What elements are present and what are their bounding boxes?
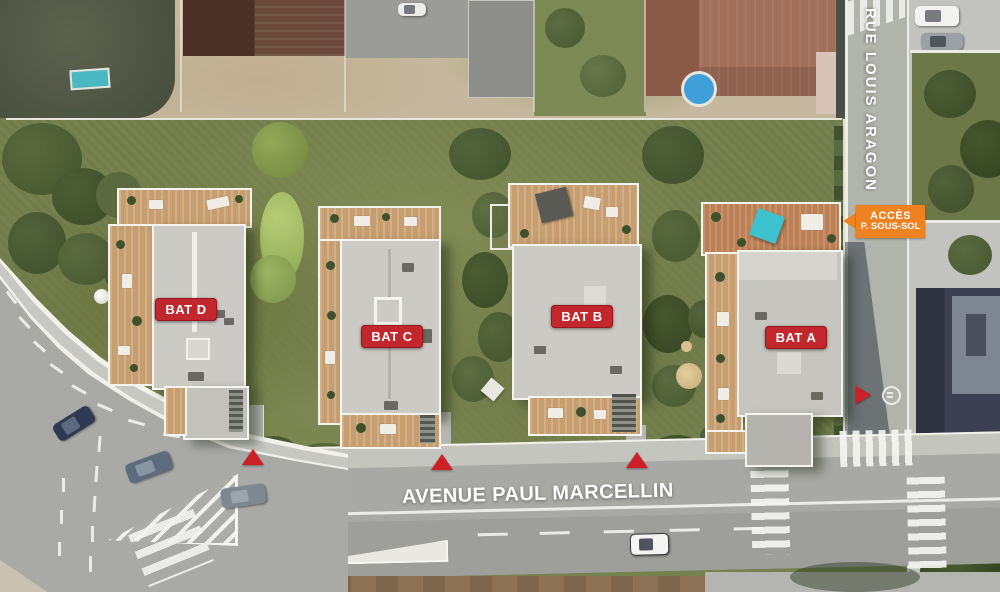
- tree: [928, 165, 974, 213]
- crosswalk: [840, 429, 919, 467]
- entrance-marker: [242, 449, 264, 465]
- house-roof: [183, 0, 345, 56]
- terrace: [508, 183, 639, 248]
- tree: [924, 70, 976, 118]
- access-arrow-icon: [843, 213, 856, 229]
- car: [921, 33, 963, 50]
- crosswalk: [907, 477, 947, 570]
- building-label-bat-d: BAT D: [155, 298, 217, 321]
- dark-building-mark: [966, 314, 986, 356]
- pool: [69, 68, 110, 91]
- entrance-marker: [626, 452, 648, 468]
- access-basement-label: ACCÈS P. SOUS-SOL: [856, 205, 925, 238]
- entrance-marker-rue: [856, 386, 871, 404]
- wall-shadow: [836, 0, 845, 118]
- terrace: [340, 413, 441, 449]
- terrace: [318, 206, 441, 243]
- building-label-bat-c: BAT C: [361, 325, 423, 348]
- fence: [344, 0, 346, 112]
- fence: [644, 0, 646, 112]
- terrace: [164, 386, 187, 436]
- fence: [533, 0, 535, 112]
- car: [915, 6, 959, 26]
- terrace: [528, 396, 642, 436]
- terrace: [705, 430, 747, 454]
- tree: [449, 128, 511, 180]
- sand-circle-small: [681, 341, 692, 352]
- tree: [462, 252, 508, 308]
- pergola-cyan: [749, 208, 785, 244]
- building-label-bat-a: BAT A: [765, 326, 827, 349]
- tree: [252, 122, 308, 178]
- tree: [580, 55, 626, 97]
- aerial-site-plan: RUE LOUIS ARAGON AVENUE PAUL MARCELLIN: [0, 0, 1000, 592]
- terrace: [117, 188, 252, 228]
- car: [398, 3, 426, 16]
- car: [630, 533, 669, 556]
- roof-wing: [183, 386, 249, 440]
- tree: [948, 235, 992, 275]
- entrance-marker: [431, 454, 453, 470]
- neighborhood-top: [0, 0, 845, 118]
- house-roof-grey: [468, 0, 536, 98]
- tree: [642, 126, 704, 184]
- house-roof-terracotta: [646, 0, 836, 96]
- building-label-bat-b: BAT B: [551, 305, 613, 328]
- house-roof-pink: [816, 52, 838, 114]
- pool-round: [681, 71, 717, 107]
- road-sign-circle: [882, 386, 901, 405]
- terrace: [108, 224, 157, 386]
- tree-shadow: [790, 562, 920, 592]
- access-label-line2: P. SOUS-SOL: [856, 222, 925, 233]
- sand-circle: [676, 363, 702, 389]
- fence: [180, 0, 182, 112]
- roof-wing: [745, 413, 813, 467]
- tree: [652, 210, 700, 262]
- tree-shadow-mass: [0, 0, 175, 118]
- crosswalk: [750, 456, 790, 555]
- tree: [545, 8, 585, 48]
- terrace-deck: [701, 202, 841, 256]
- street-name-rue: RUE LOUIS ARAGON: [862, 8, 879, 192]
